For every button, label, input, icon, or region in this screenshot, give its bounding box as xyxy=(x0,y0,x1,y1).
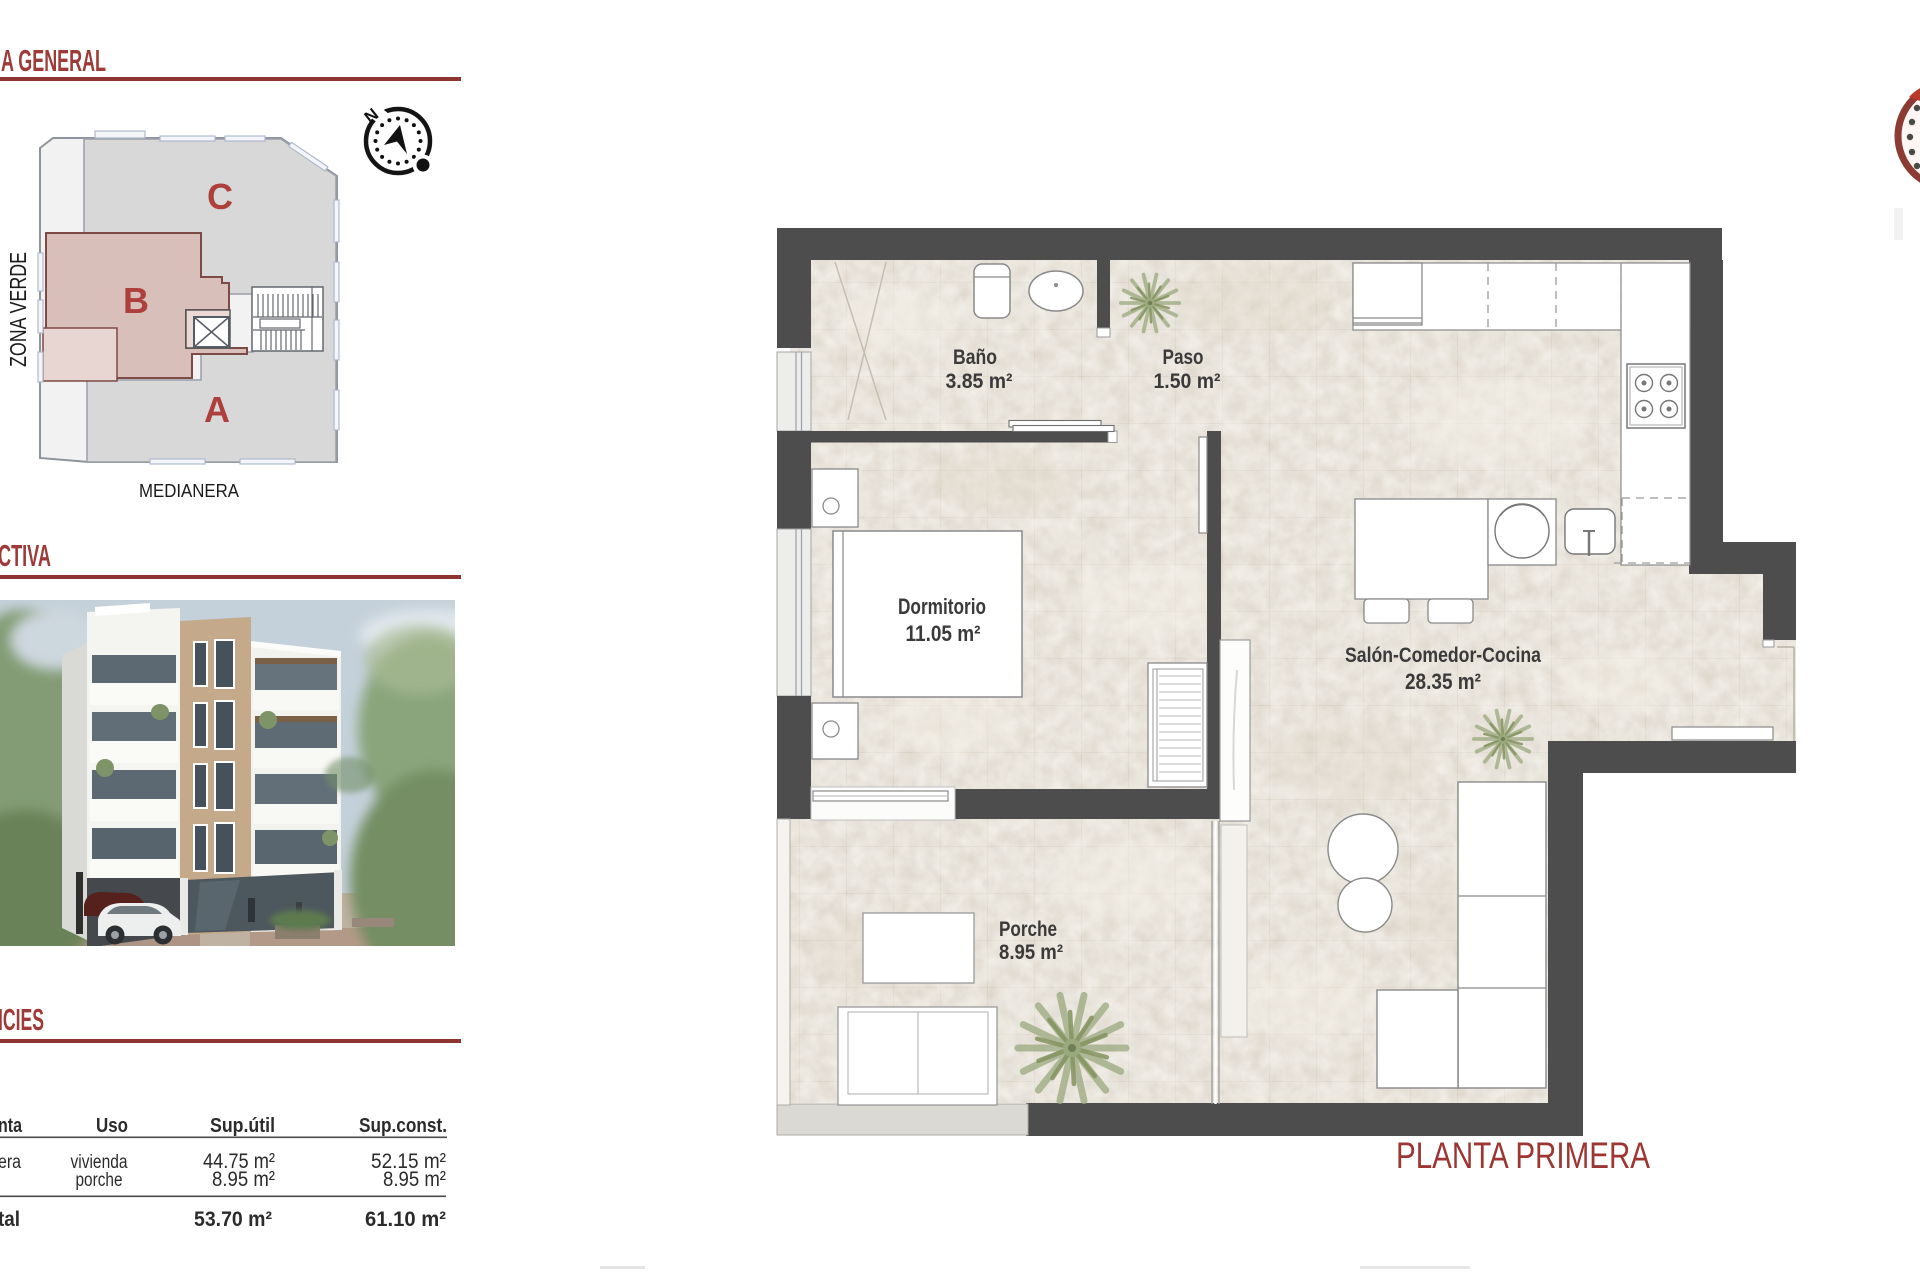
svg-text:Baño: Baño xyxy=(953,346,997,369)
svg-text:Salón-Comedor-Cocina: Salón-Comedor-Cocina xyxy=(1345,644,1541,667)
svg-text:3.85 m²: 3.85 m² xyxy=(946,370,1013,393)
svg-text:8.95 m²: 8.95 m² xyxy=(212,1168,275,1191)
svg-text:Dormitorio: Dormitorio xyxy=(898,594,986,619)
svg-text:C: C xyxy=(207,176,233,217)
svg-text:1.50 m²: 1.50 m² xyxy=(1154,370,1221,393)
svg-text:era: era xyxy=(0,1152,21,1173)
svg-text:Sup.const.: Sup.const. xyxy=(359,1115,447,1137)
svg-text:53.70 m²: 53.70 m² xyxy=(194,1208,272,1231)
svg-text:8.95 m²: 8.95 m² xyxy=(999,941,1063,964)
svg-text:Paso: Paso xyxy=(1163,346,1204,369)
svg-text:tal: tal xyxy=(0,1208,20,1231)
svg-text:A GENERAL: A GENERAL xyxy=(1,43,106,78)
svg-text:PLANTA PRIMERA: PLANTA PRIMERA xyxy=(1396,1135,1650,1176)
svg-text:Uso: Uso xyxy=(96,1115,128,1137)
svg-text:MEDIANERA: MEDIANERA xyxy=(139,481,239,501)
svg-text:Sup.útil: Sup.útil xyxy=(210,1115,275,1137)
svg-text:61.10 m²: 61.10 m² xyxy=(365,1208,446,1231)
svg-text:B: B xyxy=(123,280,149,321)
svg-text:8.95 m²: 8.95 m² xyxy=(383,1168,446,1191)
svg-text:A: A xyxy=(204,389,230,430)
svg-text:nta: nta xyxy=(0,1115,23,1137)
svg-text:porche: porche xyxy=(76,1170,123,1191)
svg-text:Porche: Porche xyxy=(999,918,1057,941)
svg-text:28.35 m²: 28.35 m² xyxy=(1405,669,1481,694)
svg-text:ICIES: ICIES xyxy=(0,1002,44,1037)
svg-text:CTIVA: CTIVA xyxy=(0,538,51,573)
svg-text:ZONA VERDE: ZONA VERDE xyxy=(5,252,31,367)
svg-text:11.05 m²: 11.05 m² xyxy=(906,621,981,646)
